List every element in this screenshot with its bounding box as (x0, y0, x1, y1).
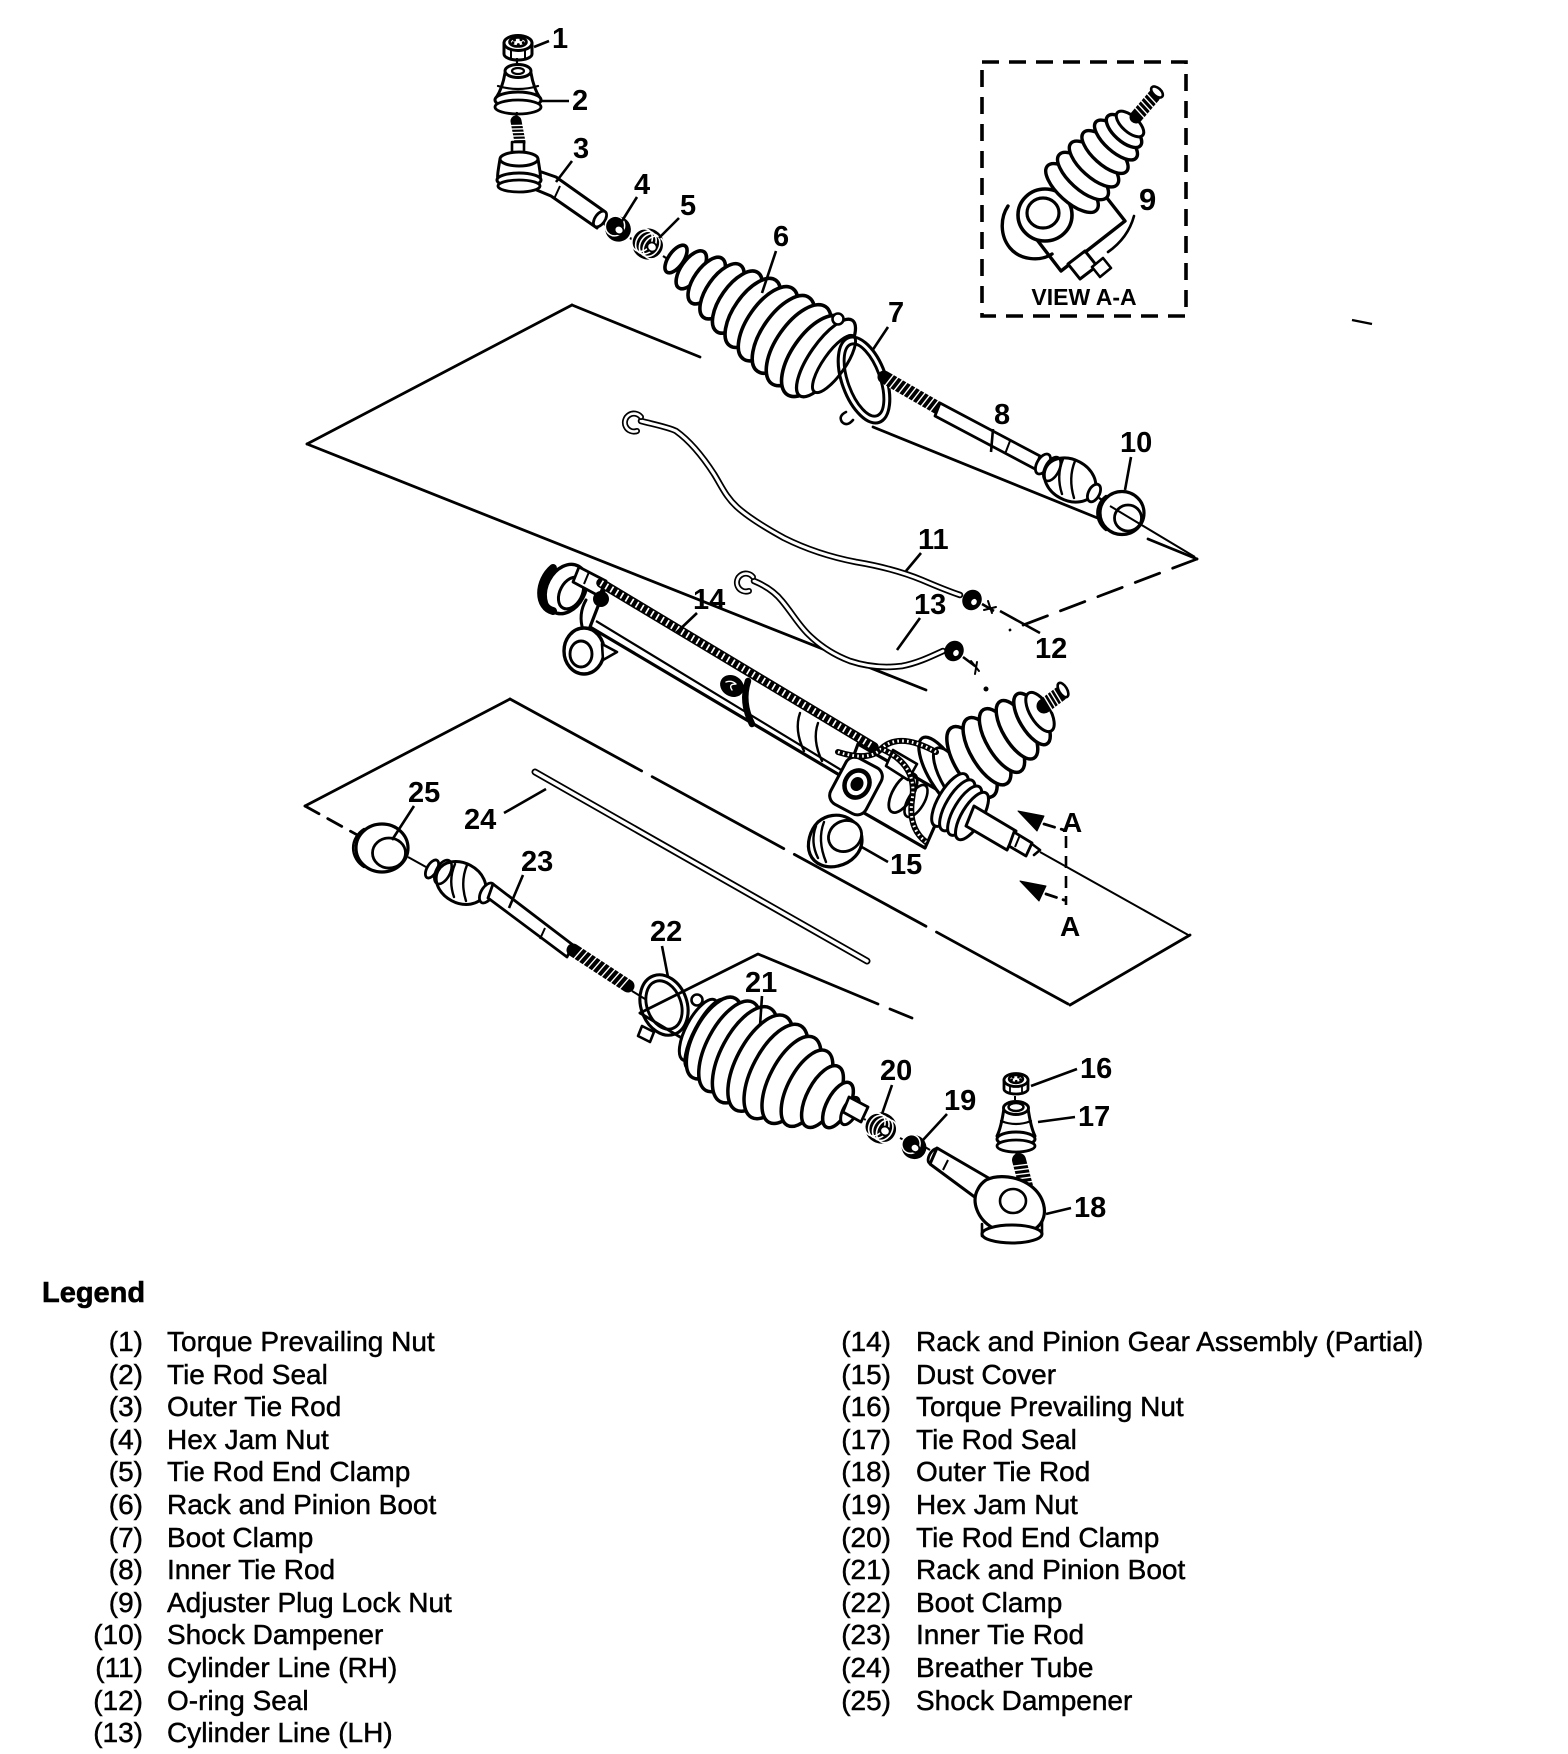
svg-text:(6): (6) (109, 1489, 143, 1520)
svg-text:Adjuster Plug Lock Nut: Adjuster Plug Lock Nut (167, 1587, 452, 1618)
svg-text:24: 24 (464, 804, 496, 836)
svg-text:A: A (1060, 911, 1080, 942)
svg-text:16: 16 (1080, 1053, 1112, 1085)
svg-text:(23): (23) (841, 1619, 891, 1650)
svg-text:(5): (5) (109, 1456, 143, 1487)
svg-text:14: 14 (693, 584, 725, 616)
svg-text:Inner Tie Rod: Inner Tie Rod (916, 1619, 1084, 1650)
svg-text:Tie Rod Seal: Tie Rod Seal (167, 1359, 328, 1390)
svg-text:Outer Tie Rod: Outer Tie Rod (167, 1391, 341, 1422)
svg-text:(3): (3) (109, 1391, 143, 1422)
svg-text:10: 10 (1120, 427, 1152, 459)
svg-text:VIEW A-A: VIEW A-A (1031, 284, 1136, 310)
svg-text:Legend: Legend (42, 1277, 145, 1309)
svg-text:25: 25 (408, 777, 440, 809)
svg-text:(9): (9) (109, 1587, 143, 1618)
svg-text:15: 15 (890, 849, 922, 881)
svg-text:Torque Prevailing Nut: Torque Prevailing Nut (916, 1391, 1184, 1422)
svg-text:(16): (16) (841, 1391, 891, 1422)
svg-text:A: A (1062, 807, 1082, 838)
svg-text:Boot Clamp: Boot Clamp (167, 1522, 313, 1553)
svg-text:(7): (7) (109, 1522, 143, 1553)
svg-text:22: 22 (650, 916, 682, 948)
svg-text:(19): (19) (841, 1489, 891, 1520)
svg-text:(12): (12) (93, 1685, 143, 1716)
svg-text:Rack and Pinion Boot: Rack and Pinion Boot (916, 1554, 1186, 1585)
svg-text:(15): (15) (841, 1359, 891, 1390)
svg-text:Shock Dampener: Shock Dampener (167, 1619, 383, 1650)
svg-text:(2): (2) (109, 1359, 143, 1390)
svg-text:8: 8 (994, 399, 1010, 431)
svg-text:(14): (14) (841, 1326, 891, 1357)
svg-text:(4): (4) (109, 1424, 143, 1455)
svg-text:4: 4 (634, 169, 650, 201)
svg-text:Hex Jam Nut: Hex Jam Nut (167, 1424, 329, 1455)
svg-text:(8): (8) (109, 1554, 143, 1585)
svg-text:(11): (11) (95, 1652, 143, 1683)
svg-text:7: 7 (888, 297, 904, 329)
svg-text:Hex Jam Nut: Hex Jam Nut (916, 1489, 1078, 1520)
svg-text:(24): (24) (841, 1652, 891, 1683)
svg-text:11: 11 (918, 524, 949, 556)
svg-text:Rack and Pinion Boot: Rack and Pinion Boot (167, 1489, 437, 1520)
svg-text:19: 19 (944, 1085, 976, 1117)
svg-text:1: 1 (552, 23, 568, 55)
svg-text:(17): (17) (841, 1424, 891, 1455)
svg-text:(18): (18) (841, 1456, 891, 1487)
svg-text:(22): (22) (841, 1587, 891, 1618)
svg-text:Boot Clamp: Boot Clamp (916, 1587, 1062, 1618)
svg-text:12: 12 (1035, 633, 1067, 665)
svg-text:18: 18 (1074, 1192, 1106, 1224)
svg-text:Cylinder Line (RH): Cylinder Line (RH) (167, 1652, 397, 1683)
svg-text:Cylinder Line (LH): Cylinder Line (LH) (167, 1717, 393, 1748)
svg-text:5: 5 (680, 190, 696, 222)
svg-text:Dust Cover: Dust Cover (916, 1359, 1056, 1390)
svg-text:O-ring Seal: O-ring Seal (167, 1685, 309, 1716)
svg-text:(10): (10) (93, 1619, 143, 1650)
svg-text:Shock Dampener: Shock Dampener (916, 1685, 1132, 1716)
svg-text:3: 3 (573, 133, 589, 165)
svg-text:Outer Tie Rod: Outer Tie Rod (916, 1456, 1090, 1487)
svg-text:(25): (25) (841, 1685, 891, 1716)
svg-text:13: 13 (914, 589, 946, 621)
svg-text:Breather Tube: Breather Tube (916, 1652, 1093, 1683)
svg-text:(13): (13) (93, 1717, 143, 1748)
svg-text:(20): (20) (841, 1522, 891, 1553)
svg-text:Tie Rod End Clamp: Tie Rod End Clamp (916, 1522, 1159, 1553)
svg-text:20: 20 (880, 1055, 912, 1087)
svg-text:23: 23 (521, 846, 553, 878)
svg-text:Tie Rod End Clamp: Tie Rod End Clamp (167, 1456, 410, 1487)
svg-text:Inner Tie Rod: Inner Tie Rod (167, 1554, 335, 1585)
svg-text:Rack and Pinion Gear Assembly: Rack and Pinion Gear Assembly (Partial) (916, 1326, 1423, 1357)
svg-text:9: 9 (1139, 182, 1156, 217)
svg-text:(21): (21) (841, 1554, 891, 1585)
svg-text:2: 2 (572, 85, 588, 117)
svg-text:Tie Rod Seal: Tie Rod Seal (916, 1424, 1077, 1455)
svg-text:(1): (1) (109, 1326, 143, 1357)
svg-text:6: 6 (773, 221, 789, 253)
svg-text:21: 21 (745, 967, 777, 999)
svg-text:Torque Prevailing Nut: Torque Prevailing Nut (167, 1326, 435, 1357)
svg-text:17: 17 (1078, 1101, 1110, 1133)
